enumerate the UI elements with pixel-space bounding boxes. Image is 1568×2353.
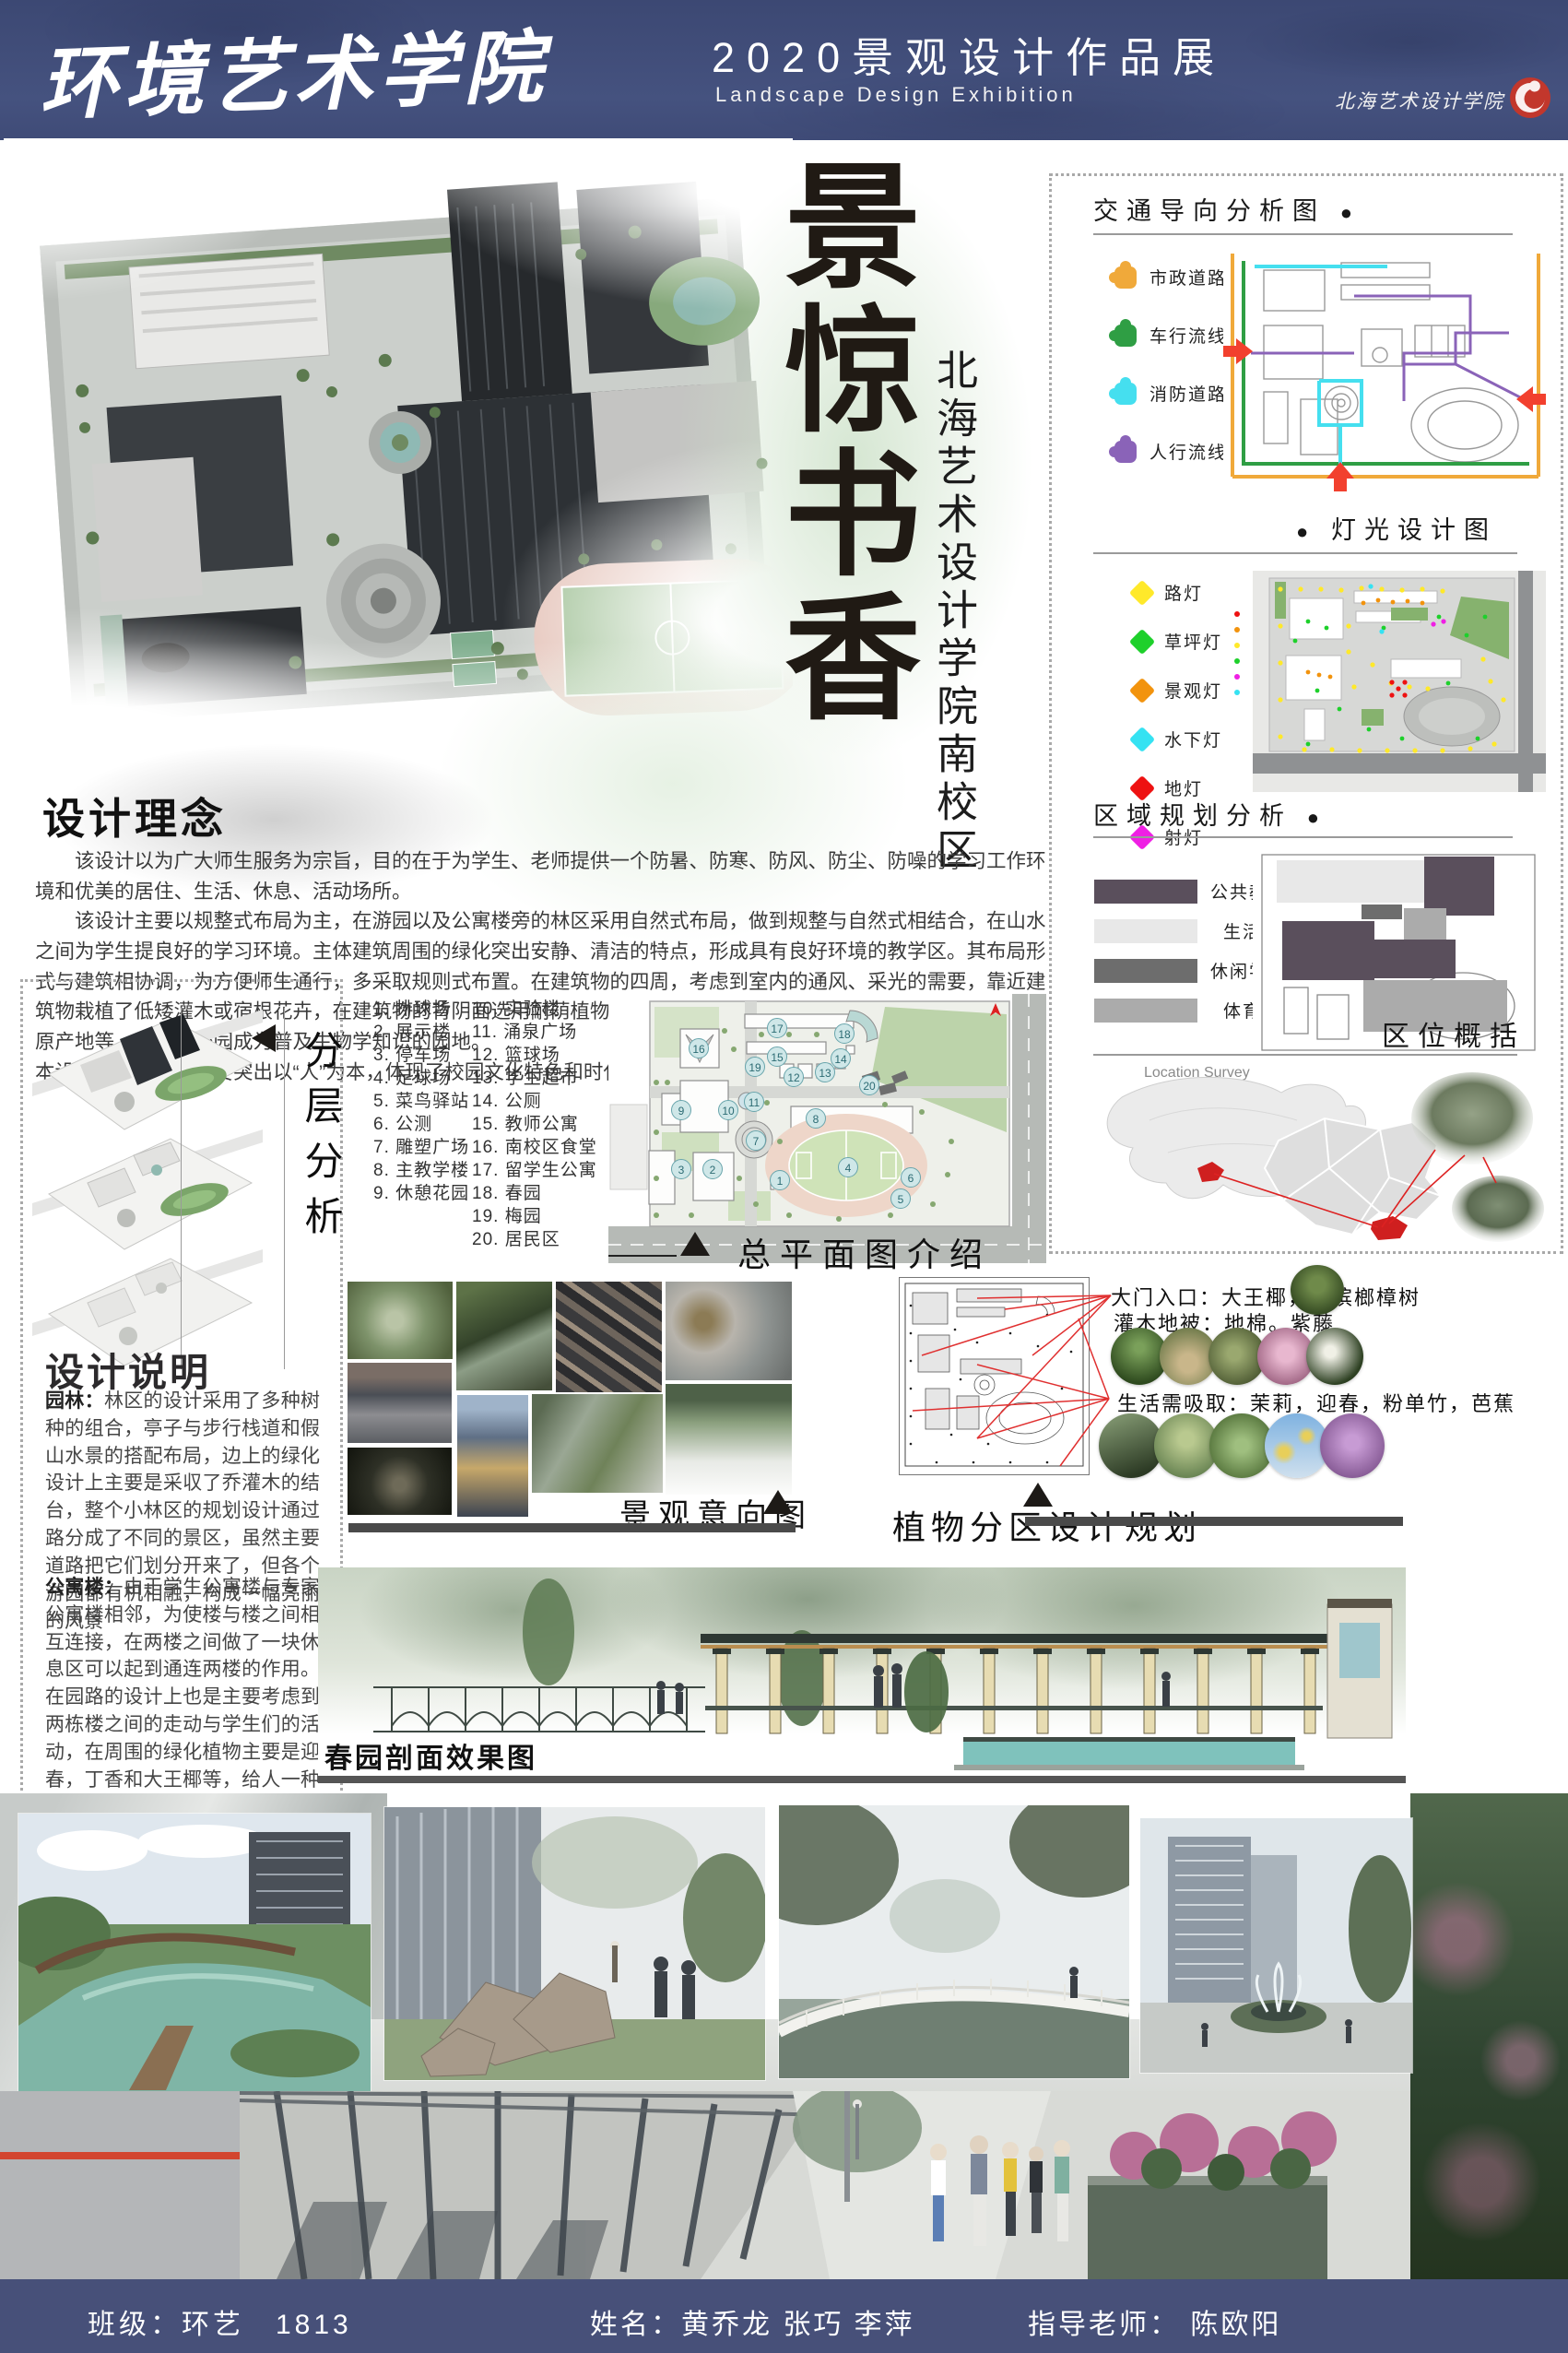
zoning-bullet-icon: ●: [1307, 806, 1327, 829]
facility-item: 19. 梅园: [472, 1205, 597, 1228]
layer-leader-line: [181, 1008, 182, 1369]
layered-axon-diagram: [32, 999, 270, 1367]
render-fountain-plaza: [1140, 1818, 1412, 2073]
plant-cad-graphic: [900, 1278, 1089, 1474]
hero-calligraphy-title: 景惊书香: [763, 155, 914, 800]
facility-item: 5. 菜鸟驿站: [373, 1090, 469, 1113]
facility-item: 13. 学生超市: [472, 1067, 597, 1090]
lawn-lamp-label: 草坪灯: [1164, 629, 1222, 654]
plant-cad-plan: [899, 1277, 1090, 1475]
lighting-color-scale: [1234, 611, 1240, 695]
traffic-legend: 市政道路 车行流线 消防道路 人行流线: [1114, 265, 1227, 464]
layer-arrow-icon: [252, 1024, 276, 1052]
facility-item: 12. 篮球场: [472, 1044, 597, 1067]
vehicle-flow-label: 车行流线: [1149, 323, 1227, 348]
footer-class: 班级：环艺 1813: [88, 2301, 352, 2342]
plan-marker: 8: [806, 1108, 826, 1129]
plan-marker: 14: [831, 1048, 851, 1069]
render-pergola-walk: [0, 2091, 1410, 2279]
render-rock-garden: [384, 1807, 765, 2080]
municipal-road-label: 市政道路: [1149, 265, 1227, 290]
footer-names: 姓名：黄乔龙 张巧 李萍: [590, 2301, 915, 2342]
pedestrian-flow-label: 人行流线: [1149, 439, 1227, 464]
lighting-bullet-icon: ●: [1296, 520, 1316, 543]
layer-leader-line: [284, 1008, 285, 1369]
plan-marker: 3: [671, 1159, 691, 1179]
vehicle-flow-icon: [1114, 325, 1137, 347]
zoning-underline: [1093, 836, 1513, 838]
plan-marker: 15: [767, 1046, 787, 1067]
lawn-lamp-icon: [1129, 628, 1155, 654]
lighting-legend-row: 水下灯: [1133, 727, 1222, 751]
facility-item: 17. 留学生公寓: [472, 1159, 597, 1182]
lighting-title: ● 灯光设计图: [1296, 510, 1497, 546]
apartment-heading: 公寓楼：: [45, 1576, 124, 1598]
location-underline: [1093, 1054, 1517, 1056]
traffic-underline: [1093, 233, 1513, 235]
plant-living-line: 生活需吸取：茉莉，迎春，粉单竹，芭蕉: [1117, 1388, 1515, 1417]
master-plan-caption-line: [608, 1255, 677, 1257]
master-plan-arrow-icon: [680, 1232, 710, 1256]
landscape-intent-rule: [348, 1523, 796, 1532]
master-plan: 1 2 3 4 5 6 7 8 9 10 11 12 13 14 15 16 1…: [608, 994, 1046, 1263]
traffic-title: 交通导向分析图 ●: [1093, 191, 1361, 227]
concept-paragraph: 该设计以为广大师生服务为宗旨，目的在于为学生、老师提供一个防暑、防寒、防风、防尘…: [35, 846, 1047, 906]
render-curved-walkway: [779, 1805, 1129, 2078]
landscape-lamp-icon: [1129, 677, 1155, 703]
facility-item: 2. 展示楼: [373, 1021, 469, 1044]
poster: 环境艺术学院 2020景观设计作品展 Landscape Design Exhi…: [0, 0, 1568, 2353]
master-plan-graphic: [608, 994, 1046, 1263]
landscape-intent-arrow-icon: [763, 1490, 793, 1514]
facility-item: 8. 主教学楼: [373, 1159, 469, 1182]
landscape-lamp-label: 景观灯: [1164, 678, 1222, 703]
exhibition-title: 2020景观设计作品展: [712, 24, 1226, 84]
plan-marker: 5: [890, 1188, 911, 1209]
school-title: 环境艺术学院: [37, 2, 549, 135]
facility-item: 15. 教师公寓: [472, 1113, 597, 1136]
plan-marker: 11: [744, 1092, 764, 1112]
logo-text: 北海艺术设计学院: [1335, 87, 1504, 114]
facility-item: 4. 足球场: [373, 1067, 469, 1090]
facility-item: 18. 春园: [472, 1182, 597, 1205]
facility-item: 20. 居民区: [472, 1228, 597, 1251]
location-title: 区位概括: [1382, 1013, 1526, 1054]
analysis-panel: 交通导向分析图 ● 市政道路 车行流线 消防道路 人行流线: [1049, 173, 1563, 1254]
photo-white-blocks-park: [666, 1384, 792, 1495]
underwater-lamp-label: 水下灯: [1164, 727, 1222, 751]
plant-photo-lilac: [1320, 1413, 1385, 1478]
plan-marker: 18: [834, 1023, 855, 1044]
teaching-zone-swatch: [1094, 880, 1197, 904]
location-maps: [1067, 1065, 1550, 1242]
plan-marker: 19: [745, 1057, 765, 1077]
plan-marker: 13: [815, 1062, 835, 1082]
leisure-zone-swatch: [1094, 959, 1197, 983]
traffic-map: [1223, 244, 1546, 491]
facility-item: 1. 排球场: [373, 998, 469, 1021]
traffic-legend-row: 人行流线: [1114, 439, 1227, 464]
render-pond-garden: [18, 1814, 371, 2091]
fire-road-label: 消防道路: [1149, 381, 1227, 406]
photo-green-benches: [456, 1282, 552, 1390]
exhibition-subtitle: Landscape Design Exhibition: [715, 83, 1077, 107]
photo-paving-mosaic: [556, 1282, 662, 1392]
lighting-map: [1253, 571, 1546, 792]
photo-street-benches: [348, 1363, 452, 1443]
plant-zoning-rule: [1025, 1517, 1403, 1526]
photo-autumn-plaza: [666, 1282, 792, 1380]
facility-item: 6. 公测: [373, 1113, 469, 1136]
photo-night-circles: [348, 1448, 452, 1515]
traffic-legend-row: 消防道路: [1114, 381, 1227, 406]
facility-item: 3. 停车场: [373, 1044, 469, 1067]
pedestrian-flow-icon: [1114, 441, 1137, 463]
plan-marker: 10: [718, 1100, 738, 1120]
lighting-underline: [1093, 552, 1517, 554]
lighting-title-text: 灯光设计图: [1331, 516, 1497, 544]
facility-item: 11. 涌泉广场: [472, 1021, 597, 1044]
plan-marker: 2: [702, 1159, 723, 1179]
design-concept-title: 设计理念: [42, 786, 227, 846]
photo-evening-city: [457, 1395, 528, 1517]
photo-garden-terraces: [348, 1282, 453, 1359]
plan-marker: 6: [901, 1167, 921, 1188]
traffic-legend-row: 市政道路: [1114, 265, 1227, 290]
footer-band: 班级：环艺 1813 姓名：黄乔龙 张巧 李萍 指导老师： 陈欧阳: [0, 2279, 1568, 2353]
facility-list-col2: 10. 实验楼 11. 涌泉广场 12. 篮球场 13. 学生超市 14. 公厕…: [472, 998, 597, 1251]
plant-photo-palm-top: [1291, 1265, 1344, 1315]
plan-marker: 16: [689, 1038, 709, 1058]
facility-item: 9. 休憩花园: [373, 1182, 469, 1205]
apartment-text: 由于学生公寓楼与专家公寓楼相邻，为使楼与楼之间相互连接，在两楼之间做了一块休息区…: [45, 1576, 320, 1818]
garden-heading: 园林：: [45, 1389, 104, 1412]
photo-courtyard-garden: [532, 1394, 663, 1493]
header-band: 环境艺术学院 2020景观设计作品展 Landscape Design Exhi…: [0, 0, 1568, 140]
zoning-title: 区域规划分析 ●: [1093, 796, 1327, 832]
traffic-legend-row: 车行流线: [1114, 323, 1227, 348]
layered-analysis-label: 分层分析: [292, 1030, 348, 1343]
plant-zoning-arrow-icon: [1023, 1483, 1053, 1507]
plant-photo-white-flower: [1306, 1328, 1363, 1385]
lighting-legend-row: 路灯: [1133, 580, 1222, 605]
plan-marker: 17: [767, 1018, 787, 1038]
plan-marker: 7: [746, 1130, 766, 1151]
traffic-bullet-icon: ●: [1340, 201, 1361, 224]
facility-item: 16. 南校区食堂: [472, 1136, 597, 1159]
fire-road-icon: [1114, 383, 1137, 405]
plan-marker: 12: [784, 1067, 804, 1087]
road-lamp-label: 路灯: [1164, 580, 1203, 605]
municipal-road-icon: [1114, 266, 1137, 289]
plan-marker: 20: [859, 1075, 879, 1095]
lighting-legend-row: 草坪灯: [1133, 629, 1222, 654]
lighting-legend-row: 景观灯: [1133, 678, 1222, 703]
master-plan-title: 总平面图介绍: [737, 1228, 992, 1276]
plan-marker: 1: [770, 1170, 790, 1190]
facility-item: 7. 雕塑广场: [373, 1136, 469, 1159]
road-lamp-icon: [1129, 579, 1155, 605]
zoning-title-text: 区域规划分析: [1093, 802, 1292, 830]
section-view-title: 春园剖面效果图: [324, 1735, 537, 1776]
sports-zone-swatch: [1094, 999, 1197, 1023]
logo-swirl: [1510, 77, 1550, 118]
school-logo-icon: [1510, 77, 1550, 118]
underwater-lamp-icon: [1129, 726, 1155, 751]
footer-advisor: 指导老师： 陈欧阳: [1028, 2301, 1281, 2342]
living-zone-swatch: [1094, 919, 1197, 943]
collage-backdrop-right: [1410, 1793, 1568, 2279]
layer-description-box: 分层分析 设计说明 园林：林区的设计采用了多种树种的组合，亭子与步行栈道和假山水…: [20, 979, 343, 1803]
plan-marker: 9: [671, 1100, 691, 1120]
facility-item: 10. 实验楼: [472, 998, 597, 1021]
section-view-rule: [318, 1776, 1406, 1783]
traffic-title-text: 交通导向分析图: [1093, 197, 1326, 225]
facility-item: 14. 公厕: [472, 1090, 597, 1113]
facility-list-col1: 1. 排球场 2. 展示楼 3. 停车场 4. 足球场 5. 菜鸟驿站 6. 公…: [373, 998, 469, 1205]
apartment-paragraph: 公寓楼：由于学生公寓楼与专家公寓楼相邻，为使楼与楼之间相互连接，在两楼之间做了一…: [45, 1574, 320, 1821]
plan-marker: 4: [838, 1157, 858, 1177]
